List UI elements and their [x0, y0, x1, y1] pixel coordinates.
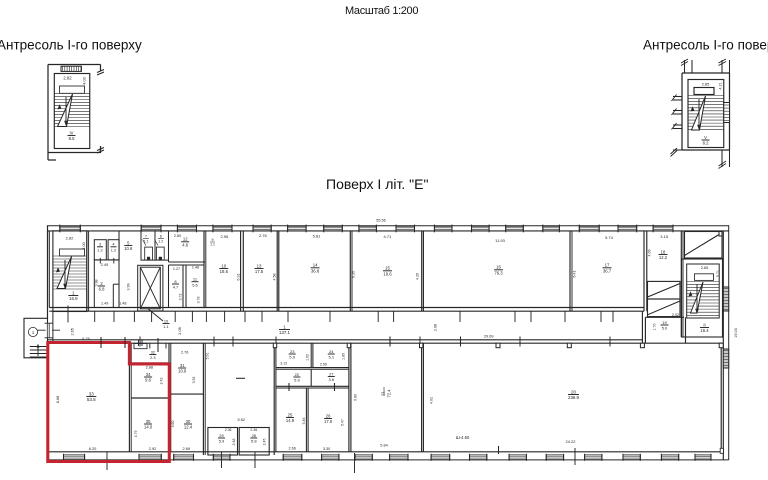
- svg-text:5.74: 5.74: [605, 235, 614, 240]
- svg-text:1.2: 1.2: [111, 247, 116, 252]
- svg-text:5.6: 5.6: [192, 282, 198, 287]
- svg-text:2.42: 2.42: [160, 378, 164, 385]
- svg-text:1.48: 1.48: [119, 302, 126, 306]
- svg-text:16: 16: [496, 265, 501, 270]
- svg-text:5.1: 5.1: [329, 355, 335, 360]
- svg-text:3.72: 3.72: [179, 294, 183, 301]
- svg-text:24: 24: [329, 349, 334, 354]
- svg-text:2.76: 2.76: [259, 233, 268, 238]
- svg-text:21: 21: [381, 391, 386, 396]
- svg-text:4.60: 4.60: [171, 421, 175, 428]
- svg-text:2.50: 2.50: [320, 362, 327, 366]
- svg-text:6.41: 6.41: [573, 271, 577, 278]
- svg-text:Антресоль І-го поверху: Антресоль І-го поверху: [0, 38, 142, 53]
- svg-text:17.5: 17.5: [255, 269, 264, 274]
- svg-text:3.99: 3.99: [127, 284, 131, 291]
- svg-text:4.58: 4.58: [272, 274, 276, 281]
- svg-text:2.76: 2.76: [181, 351, 188, 355]
- svg-text:10.9: 10.9: [178, 369, 187, 374]
- svg-text:5.91: 5.91: [206, 353, 210, 360]
- svg-text:34: 34: [146, 372, 151, 377]
- svg-text:5.71: 5.71: [716, 270, 720, 277]
- svg-text:29.69: 29.69: [484, 335, 494, 339]
- svg-text:25: 25: [288, 412, 293, 417]
- svg-text:17: 17: [605, 263, 610, 268]
- svg-text:4.71: 4.71: [384, 234, 393, 239]
- svg-text:4.6: 4.6: [182, 242, 188, 247]
- svg-text:1.1: 1.1: [210, 243, 215, 247]
- svg-text:5.47: 5.47: [340, 419, 344, 426]
- svg-text:2.66: 2.66: [289, 447, 296, 451]
- svg-text:55.56: 55.56: [376, 219, 386, 223]
- svg-text:10: 10: [221, 263, 226, 268]
- svg-text:3.98: 3.98: [94, 280, 98, 287]
- svg-text:5.9: 5.9: [289, 355, 295, 360]
- svg-text:Ш-4.60: Ш-4.60: [456, 435, 470, 440]
- svg-text:2.36: 2.36: [250, 428, 257, 432]
- svg-text:9.6: 9.6: [145, 378, 151, 383]
- svg-text:12.2: 12.2: [659, 255, 668, 260]
- svg-text:4.01: 4.01: [430, 397, 434, 404]
- svg-text:19.03: 19.03: [734, 328, 738, 338]
- svg-text:1.89: 1.89: [341, 353, 345, 360]
- svg-text:28: 28: [252, 433, 257, 438]
- svg-text:5.46: 5.46: [302, 418, 306, 425]
- svg-text:14: 14: [313, 263, 318, 268]
- svg-text:2.85: 2.85: [702, 82, 711, 87]
- svg-text:4.79: 4.79: [134, 431, 138, 438]
- svg-text:4.26: 4.26: [416, 273, 420, 280]
- svg-text:14.0: 14.0: [144, 425, 153, 430]
- svg-text:Масштаб 1:200: Масштаб 1:200: [345, 5, 418, 17]
- svg-text:2.65: 2.65: [701, 265, 709, 270]
- svg-text:6.35: 6.35: [352, 271, 356, 278]
- svg-text:15: 15: [385, 266, 390, 271]
- svg-text:6.31: 6.31: [237, 274, 241, 281]
- svg-text:35: 35: [146, 419, 151, 424]
- svg-text:32: 32: [151, 349, 155, 354]
- svg-text:5.84: 5.84: [380, 444, 387, 448]
- svg-text:2.08: 2.08: [178, 327, 182, 334]
- svg-text:22: 22: [295, 372, 300, 377]
- svg-text:236.9: 236.9: [568, 395, 580, 400]
- svg-text:14.9: 14.9: [286, 418, 295, 423]
- svg-text:53.8: 53.8: [87, 397, 96, 402]
- svg-text:16.9: 16.9: [69, 296, 78, 301]
- svg-text:2.82: 2.82: [66, 236, 75, 241]
- svg-text:V: V: [704, 135, 707, 140]
- svg-text:1.92: 1.92: [306, 354, 310, 361]
- svg-text:2.48: 2.48: [232, 439, 236, 446]
- svg-text:24.22: 24.22: [565, 439, 576, 444]
- svg-text:5.0: 5.0: [662, 326, 668, 331]
- svg-text:20: 20: [571, 389, 576, 394]
- svg-text:2.49: 2.49: [101, 263, 108, 267]
- svg-text:3.78: 3.78: [197, 297, 201, 304]
- svg-text:30: 30: [186, 419, 191, 424]
- svg-text:23: 23: [290, 349, 295, 354]
- svg-text:2.36: 2.36: [225, 428, 232, 432]
- svg-text:4.09: 4.09: [648, 250, 652, 257]
- svg-text:4.21: 4.21: [719, 82, 723, 89]
- svg-text:2.69: 2.69: [183, 446, 191, 451]
- svg-text:3: 3: [99, 242, 101, 247]
- svg-text:2.65: 2.65: [71, 328, 75, 335]
- svg-text:2.3: 2.3: [150, 355, 155, 360]
- svg-text:19.6: 19.6: [383, 271, 392, 276]
- svg-text:137.1: 137.1: [279, 330, 291, 335]
- svg-text:4.03: 4.03: [82, 76, 87, 85]
- svg-text:6: 6: [160, 234, 162, 239]
- svg-text:ІІ: ІІ: [703, 322, 705, 327]
- svg-text:7: 7: [145, 234, 147, 239]
- svg-text:2.82: 2.82: [63, 76, 72, 81]
- svg-text:5.62: 5.62: [238, 417, 246, 422]
- svg-text:2.95: 2.95: [221, 234, 230, 239]
- svg-text:19: 19: [662, 320, 667, 325]
- svg-text:3.6: 3.6: [329, 377, 335, 382]
- svg-text:6.76: 6.76: [82, 337, 89, 341]
- svg-text:4.7: 4.7: [173, 285, 179, 290]
- svg-text:2.45: 2.45: [263, 439, 267, 446]
- svg-text:72.4: 72.4: [387, 389, 392, 398]
- svg-text:IV: IV: [70, 130, 74, 135]
- svg-text:6.20: 6.20: [89, 446, 97, 451]
- svg-text:33: 33: [89, 391, 95, 396]
- svg-text:1.48: 1.48: [192, 266, 199, 270]
- svg-text:18.6: 18.6: [220, 269, 229, 274]
- svg-text:16.4: 16.4: [700, 328, 709, 333]
- svg-text:17.0: 17.0: [324, 419, 333, 424]
- svg-text:5.81: 5.81: [313, 234, 322, 239]
- svg-text:3.12: 3.12: [280, 362, 287, 366]
- svg-text:2.08: 2.08: [434, 324, 438, 331]
- svg-text:3.30: 3.30: [323, 447, 330, 451]
- svg-text:2.80: 2.80: [174, 234, 181, 238]
- svg-text:Антресоль І-го поверху: Антресоль І-го поверху: [643, 38, 768, 53]
- svg-text:2.88: 2.88: [146, 366, 153, 370]
- svg-text:8.5: 8.5: [69, 136, 75, 141]
- svg-text:1.27: 1.27: [173, 267, 180, 271]
- svg-text:26: 26: [326, 413, 331, 418]
- svg-text:27: 27: [329, 371, 334, 376]
- svg-text:9: 9: [211, 238, 213, 242]
- svg-text:18: 18: [661, 249, 666, 254]
- svg-text:76.3: 76.3: [494, 270, 503, 275]
- svg-text:6.8: 6.8: [99, 287, 105, 292]
- svg-text:1.2: 1.2: [158, 240, 163, 244]
- svg-text:2.92: 2.92: [149, 446, 157, 451]
- svg-text:8.2: 8.2: [703, 141, 709, 146]
- svg-text:5.9: 5.9: [294, 378, 300, 383]
- svg-text:1.49: 1.49: [101, 302, 108, 306]
- svg-text:1.70: 1.70: [653, 324, 657, 331]
- svg-text:3.15: 3.15: [660, 234, 669, 239]
- svg-text:9.80: 9.80: [354, 394, 358, 401]
- svg-text:13: 13: [257, 263, 262, 268]
- svg-text:1.1: 1.1: [163, 324, 168, 329]
- svg-text:31: 31: [180, 363, 185, 368]
- svg-text:10.6: 10.6: [124, 246, 133, 251]
- svg-text:2.02: 2.02: [672, 313, 679, 317]
- svg-text:5.8: 5.8: [251, 439, 257, 444]
- svg-text:36.7: 36.7: [603, 268, 612, 273]
- svg-text:8.68: 8.68: [55, 396, 60, 404]
- svg-text:Поверх І літ. "Е": Поверх І літ. "Е": [326, 176, 428, 192]
- svg-text:5.9: 5.9: [219, 439, 225, 444]
- svg-text:1.2: 1.2: [97, 247, 102, 252]
- svg-text:12.4: 12.4: [184, 425, 193, 430]
- svg-text:36.8: 36.8: [311, 268, 320, 273]
- svg-text:29: 29: [219, 433, 224, 438]
- svg-text:12: 12: [183, 237, 188, 242]
- svg-text:11.93: 11.93: [495, 238, 505, 243]
- svg-text:3.92: 3.92: [192, 377, 196, 384]
